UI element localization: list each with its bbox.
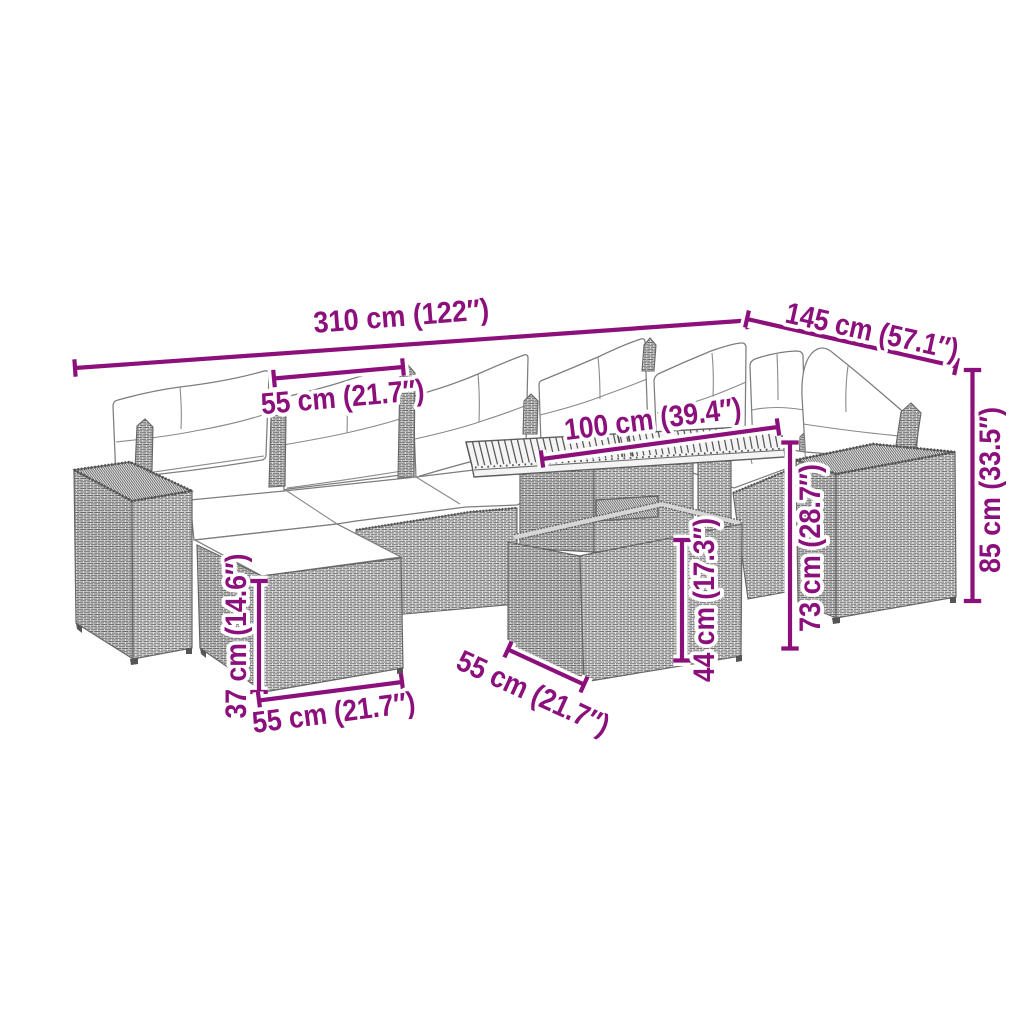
svg-text:85 cm (33.5″): 85 cm (33.5″) bbox=[974, 407, 1007, 573]
svg-text:37 cm (14.6″): 37 cm (14.6″) bbox=[220, 554, 253, 719]
svg-text:44 cm (17.3″): 44 cm (17.3″) bbox=[688, 518, 721, 682]
svg-text:73 cm (28.7″): 73 cm (28.7″) bbox=[794, 464, 827, 632]
